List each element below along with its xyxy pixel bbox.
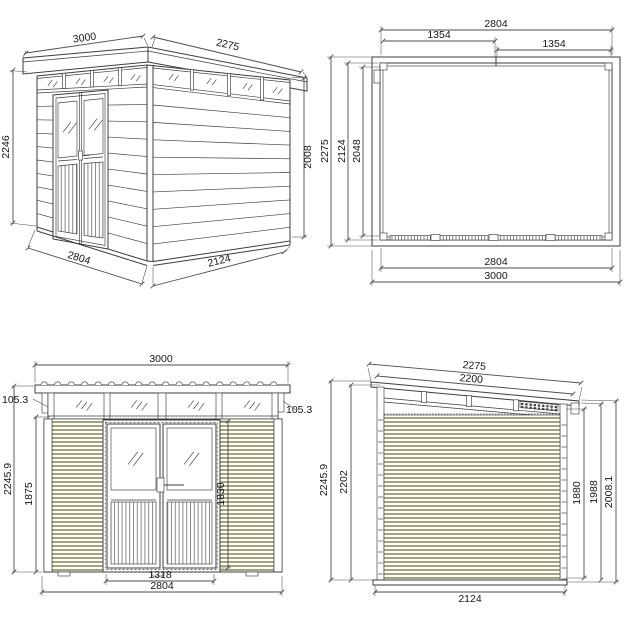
double-door: [53, 90, 108, 249]
edge-post-left: [377, 387, 384, 580]
edge-post-right: [560, 404, 567, 580]
plan-view: 2804 1354 1354 2275 2124 2048 2804 3000: [319, 18, 622, 286]
dim-label-fascia-right: 105.3: [286, 404, 312, 416]
front-elevation: 3000 105.3 105.3 2245.9 1875 1830 1318 2…: [2, 353, 312, 596]
dim-label-wall-height: 1875: [23, 482, 35, 506]
clerestory-mullion: [272, 393, 278, 419]
shed-technical-drawing: 3000 2275 2246 2008 2804 2124 2804 1354: [0, 0, 630, 630]
dim-label-rear-height: 2008: [302, 145, 314, 169]
fascia-bracket-right: [571, 403, 579, 414]
dim-label-roof-length-inner: 2200: [459, 372, 484, 386]
dim-label-front-height-outer: 2245.9: [318, 464, 330, 496]
dim-label-roof-length-outer: 2275: [462, 359, 487, 373]
clerestory-mullion: [216, 393, 222, 419]
wall-outline: [380, 63, 612, 240]
dim-label-depth-outer: 2275: [319, 139, 331, 163]
double-door: [103, 420, 220, 572]
clerestory-mullion: [119, 68, 122, 86]
dim-label-door-height: 1830: [215, 482, 227, 506]
door-slats-left: [58, 164, 77, 234]
corner-trim-right: [274, 419, 282, 572]
truss-post: [514, 400, 519, 411]
truss-post: [467, 396, 472, 407]
door-glass-left: [111, 428, 156, 490]
siding: [384, 415, 560, 580]
dim-label-base-front-width: 2804: [66, 249, 92, 267]
dim-label-wall-width-bottom: 2804: [484, 256, 508, 268]
door-slats-right: [167, 502, 212, 564]
dim-label-wall-width-top: 2804: [484, 18, 508, 30]
dim-label-door-half-right: 1354: [542, 38, 566, 50]
clerestory-mullion: [261, 77, 264, 100]
clerestory-mullion: [158, 393, 166, 419]
dim-label-front-height-inner: 2202: [338, 470, 350, 494]
door-handle: [79, 151, 83, 160]
door-slats-right: [84, 162, 103, 238]
dim-label-fascia-left: 105.3: [2, 394, 28, 406]
door-glass-left: [58, 101, 77, 158]
dim-label-wall-width: 2804: [150, 580, 174, 592]
dim-label-roof-side-depth: 2275: [215, 37, 241, 54]
dim-label-rear-height-outer: 2008.1: [603, 476, 615, 508]
dim-label-total-height: 2245.9: [2, 463, 14, 495]
clerestory-mullion: [228, 73, 231, 95]
dim-label-door-half-left: 1354: [427, 29, 451, 41]
siding-left: [52, 419, 103, 572]
dim-label-depth-wall: 2124: [336, 139, 348, 163]
corner-trim-left: [44, 419, 52, 572]
dim-label-roof-width: 3000: [484, 270, 508, 282]
roof-slab: [371, 382, 579, 406]
dim-label-depth-inner: 2048: [351, 139, 363, 163]
dim-label-base-side-depth: 2124: [206, 252, 232, 269]
truss-post: [422, 392, 427, 403]
door-glass-right: [84, 99, 103, 156]
corner-post: [147, 65, 153, 262]
dim-label-roof-width: 3000: [149, 353, 173, 365]
door-slats-left: [111, 502, 156, 564]
dim-label-base-depth: 2124: [458, 593, 482, 605]
roof-slab: [35, 385, 290, 393]
clerestory-band: [48, 393, 278, 419]
clerestory-mullion: [104, 393, 110, 419]
dim-label-rear-wall-height: 1880: [571, 481, 583, 505]
clerestory-mullion: [63, 73, 66, 88]
clerestory-mullion: [48, 393, 54, 419]
side-elevation: 2275 2200 2245.9 2202 1880 1988 2008.1 2…: [318, 359, 619, 605]
base-skid: [373, 580, 567, 585]
side-wall: [373, 387, 567, 585]
right-wall: [153, 66, 290, 262]
dim-label-rear-height-mid: 1988: [588, 480, 600, 504]
door-hinge-marker: [374, 70, 380, 83]
clerestory-mullion: [91, 71, 94, 88]
perspective-view: 3000 2275 2246 2008 2804 2124: [0, 30, 314, 288]
dim-label-front-height: 2246: [0, 135, 12, 159]
door-glass-right: [167, 428, 212, 490]
door-lock-plate: [157, 478, 164, 492]
clerestory-mullion: [191, 69, 194, 90]
